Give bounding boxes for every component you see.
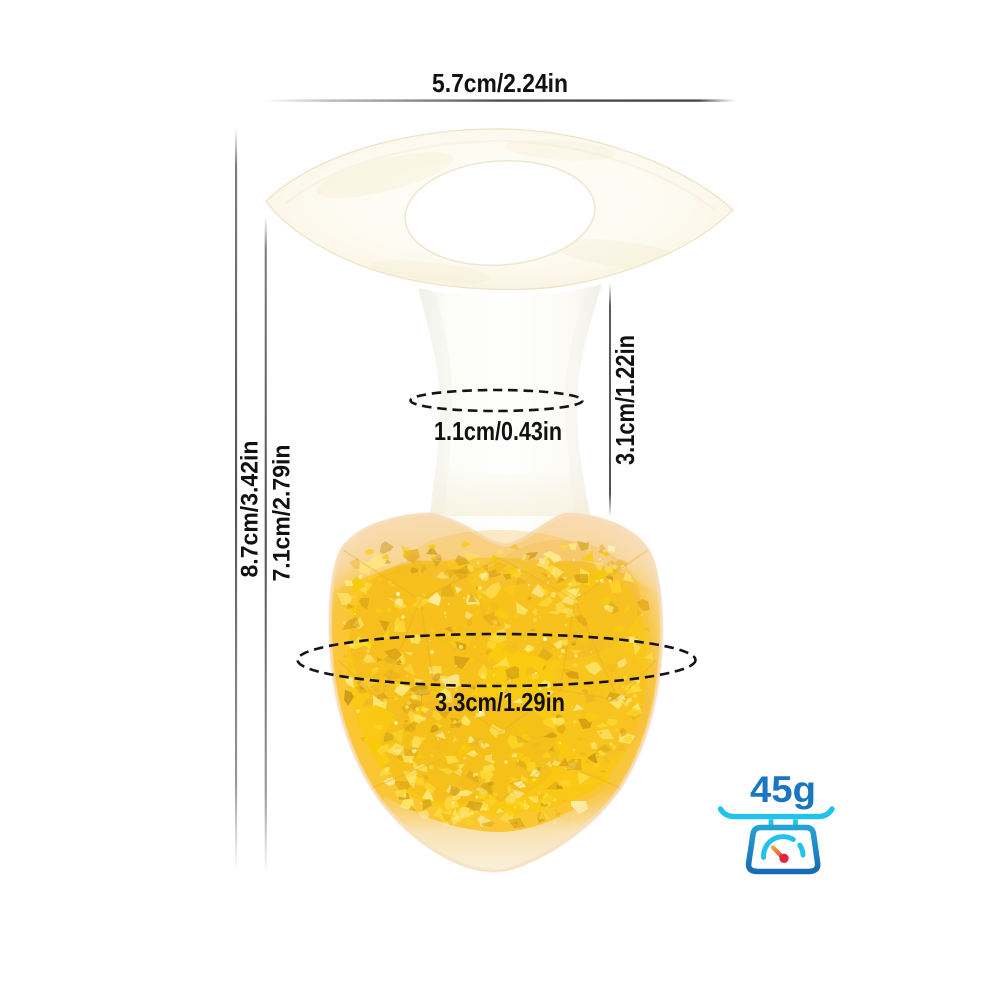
svg-text:3.3cm/1.29in: 3.3cm/1.29in [435,687,565,717]
svg-text:45g: 45g [750,769,816,810]
svg-text:7.1cm/2.79in: 7.1cm/2.79in [269,445,296,582]
svg-text:5.7cm/2.24in: 5.7cm/2.24in [432,68,568,98]
svg-text:8.7cm/3.42in: 8.7cm/3.42in [237,441,264,578]
svg-text:3.1cm/1.22in: 3.1cm/1.22in [610,335,640,465]
svg-text:1.1cm/0.43in: 1.1cm/0.43in [434,416,562,446]
